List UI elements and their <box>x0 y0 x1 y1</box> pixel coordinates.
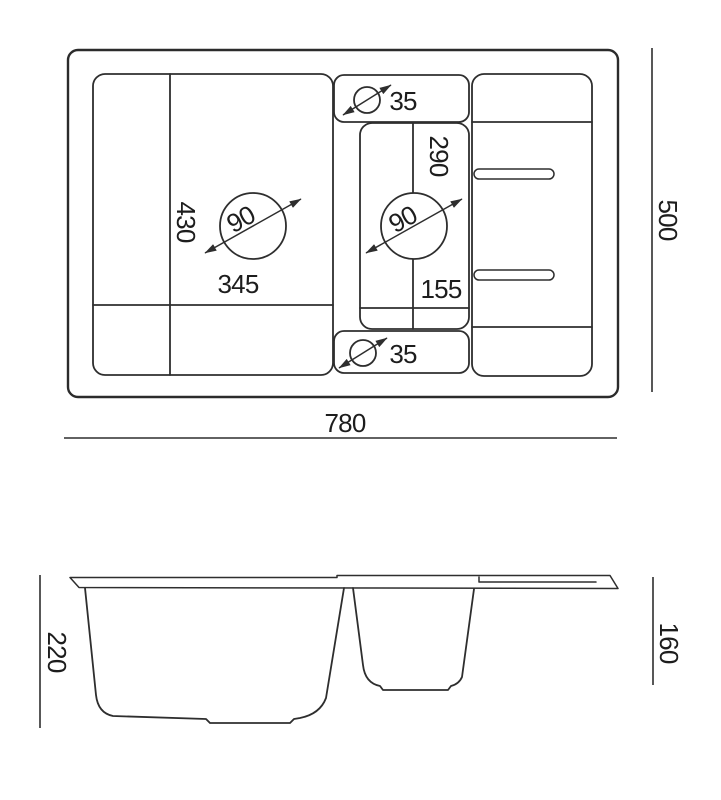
small-bowl-width-label: 155 <box>421 274 462 304</box>
drawing-canvas: 430 345 90 290 155 90 35 35 780 500 220 … <box>0 0 721 800</box>
drain-groove-bottom <box>474 270 554 280</box>
side-view: 220 160 <box>40 575 684 728</box>
dimension-overall-depth: 500 <box>652 48 683 392</box>
sink-outline <box>68 50 618 397</box>
overall-depth-label: 500 <box>653 200 683 241</box>
dimension-overall-width: 780 <box>64 408 617 438</box>
main-bowl-width-label: 345 <box>218 269 259 299</box>
small-bowl-height-label: 160 <box>654 623 684 664</box>
drain-groove-top <box>474 169 554 179</box>
small-bowl-profile <box>353 588 474 690</box>
drainboard-surface-line <box>479 577 596 582</box>
tap-hole-bottom-label: 35 <box>389 339 417 369</box>
main-bowl-profile <box>85 588 344 723</box>
sink-technical-drawing: 430 345 90 290 155 90 35 35 780 500 220 … <box>0 0 721 800</box>
small-bowl-depth-label: 290 <box>424 136 454 177</box>
top-view: 430 345 90 290 155 90 35 35 <box>68 50 618 397</box>
main-bowl-height-label: 220 <box>42 632 72 673</box>
overall-width-label: 780 <box>325 408 366 438</box>
main-bowl-outline <box>93 74 333 375</box>
main-bowl-depth-label: 430 <box>171 202 201 243</box>
tap-hole-top-label: 35 <box>389 86 417 116</box>
drainboard-outline <box>472 74 592 376</box>
